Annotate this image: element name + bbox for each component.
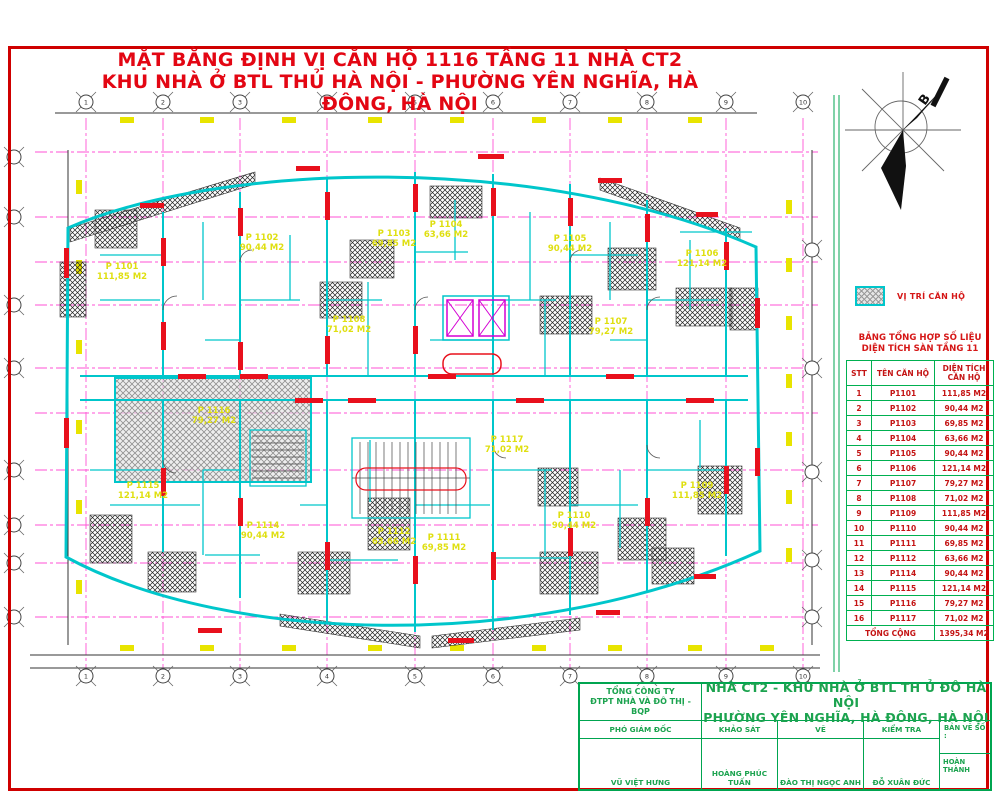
grid-bubble: [802, 240, 822, 260]
table-cell: 90,44 M2: [935, 521, 994, 536]
svg-text:1: 1: [84, 672, 88, 680]
table-cell: 14: [847, 581, 872, 596]
apartment-label-p1108: P 110871,02 M2: [327, 315, 371, 335]
svg-text:10: 10: [799, 98, 807, 106]
svg-text:5: 5: [413, 672, 417, 680]
legend: VỊ TRÍ CĂN HỘ: [855, 286, 965, 306]
svg-text:7: 7: [568, 672, 572, 680]
role-cell: VẼ: [778, 721, 864, 738]
company-line-2: ĐTPT NHÀ VÀ ĐÔ THỊ - BQP: [580, 697, 701, 717]
legend-hatch-swatch: [855, 286, 885, 306]
grid-bubble: [802, 550, 822, 570]
project-cell: NHÀ CT2 - KHU NHÀ Ở BTL TH Ủ ĐÔ HÀ NỘI P…: [702, 684, 990, 720]
table-cell: 4: [847, 431, 872, 446]
table-cell: P1107: [872, 476, 935, 491]
grid-bubble: 4: [317, 666, 337, 686]
svg-text:9: 9: [724, 98, 728, 106]
table-cell: 12: [847, 551, 872, 566]
svg-text:4: 4: [325, 672, 329, 680]
svg-text:8: 8: [645, 672, 649, 680]
table-row: 14P1115121,14 M2: [847, 581, 994, 596]
table-cell: P1106: [872, 461, 935, 476]
apartment-label-p1112: P 111263,66 M2: [372, 527, 416, 547]
title-line-2: KHU NHÀ Ở BTL THỦ HÀ NỘI - PHƯỜNG YÊN NG…: [85, 71, 715, 115]
table-cell: 63,66 M2: [935, 431, 994, 446]
grid-bubble: [4, 460, 24, 480]
table-cell: P1112: [872, 551, 935, 566]
table-cell: 1: [847, 386, 872, 401]
grid-bubble: [4, 358, 24, 378]
drawing-sheet: B 1234567891012345678910 MẶT BẰNG ĐỊNH V…: [0, 0, 1000, 800]
summary-table: BẢNG TỔNG HỢP SỐ LIỆU DIỆN TÍCH SÀN TẦNG…: [846, 333, 994, 641]
table-cell: 13: [847, 566, 872, 581]
apartment-label-p1107: P 110779,27 M2: [589, 317, 633, 337]
apartment-label-p1114: P 111490,44 M2: [241, 521, 285, 541]
grid-bubble: 6: [483, 666, 503, 686]
apartment-label-p1110: P 111090,44 M2: [552, 511, 596, 531]
sheet-number-cell: BẢN VẼ SỐ :: [940, 721, 990, 754]
table-cell: 10: [847, 521, 872, 536]
table-cell: P1117: [872, 611, 935, 626]
table-cell: 121,14 M2: [935, 581, 994, 596]
table-cell: P1109: [872, 506, 935, 521]
project-line-1: NHÀ CT2 - KHU NHÀ Ở BTL TH Ủ ĐÔ HÀ NỘI: [702, 680, 990, 710]
grid-bubble: 3: [230, 666, 250, 686]
header-stt: STT: [847, 361, 872, 386]
apartment-label-p1109: P 1109111,85 M2: [672, 481, 722, 501]
header-ten-can-ho: TÊN CĂN HỘ: [872, 361, 935, 386]
table-row: 11P111169,85 M2: [847, 536, 994, 551]
header-dien-tich: DIỆN TÍCH CĂN HỘ: [935, 361, 994, 386]
grid-bubble: 2: [153, 666, 173, 686]
grid-bubble: [802, 462, 822, 482]
company-cell: TỔNG CÔNG TY ĐTPT NHÀ VÀ ĐÔ THỊ - BQP: [580, 684, 702, 720]
table-row: 2P110290,44 M2: [847, 401, 994, 416]
grid-bubble: 1: [76, 666, 96, 686]
table-cell: 2: [847, 401, 872, 416]
table-cell: P1114: [872, 566, 935, 581]
apartment-label-p1104: P 110463,66 M2: [424, 220, 468, 240]
summary-header-row: STT TÊN CĂN HỘ DIỆN TÍCH CĂN HỘ: [847, 361, 994, 386]
table-cell: 6: [847, 461, 872, 476]
table-cell: P1108: [872, 491, 935, 506]
grid-bubble: [4, 515, 24, 535]
table-cell: 90,44 M2: [935, 566, 994, 581]
table-cell: 9: [847, 506, 872, 521]
name-cell: VŨ VIỆT HƯNG: [580, 739, 702, 789]
table-row: 8P110871,02 M2: [847, 491, 994, 506]
name-cell: ĐÀO THỊ NGỌC ANH: [778, 739, 864, 789]
table-cell: 15: [847, 596, 872, 611]
table-cell: 16: [847, 611, 872, 626]
table-cell: 69,85 M2: [935, 536, 994, 551]
table-cell: P1104: [872, 431, 935, 446]
summary-total-row: TỔNG CỘNG 1395,34 M2: [847, 626, 994, 641]
table-row: 1P1101111,85 M2: [847, 386, 994, 401]
svg-text:6: 6: [491, 672, 495, 680]
table-row: 16P111771,02 M2: [847, 611, 994, 626]
apartment-label-p1115: P 1115121,14 M2: [118, 481, 168, 501]
table-cell: P1110: [872, 521, 935, 536]
grid-bubble: [802, 607, 822, 627]
grid-bubble: 10: [793, 92, 813, 112]
role-cell: PHÓ GIÁM ĐỐC: [580, 721, 702, 738]
table-cell: 111,85 M2: [935, 506, 994, 521]
company-line-1: TỔNG CÔNG TY: [580, 687, 701, 697]
table-cell: 71,02 M2: [935, 611, 994, 626]
total-value: 1395,34 M2: [935, 626, 994, 641]
table-row: 4P110463,66 M2: [847, 431, 994, 446]
drawing-title: MẶT BẰNG ĐỊNH VỊ CĂN HỘ 1116 TẦNG 11 NHÀ…: [85, 49, 715, 115]
table-row: 13P111490,44 M2: [847, 566, 994, 581]
table-cell: P1111: [872, 536, 935, 551]
north-arrow-icon: B: [845, 72, 961, 210]
svg-text:3: 3: [238, 672, 242, 680]
apartment-label-p1117: P 111771,02 M2: [485, 435, 529, 455]
apartment-label-p1116: P 111679,27 M2: [192, 406, 236, 426]
apartment-label-p1103: P 110369,85 M2: [372, 229, 416, 249]
name-cell: ĐỖ XUÂN ĐỨC: [864, 739, 939, 789]
table-row: 10P111090,44 M2: [847, 521, 994, 536]
apartment-label-p1111: P 111169,85 M2: [422, 533, 466, 553]
table-cell: 5: [847, 446, 872, 461]
frame-divider: [834, 95, 839, 672]
roles-row: PHÓ GIÁM ĐỐCKHẢO SÁTVẼKIỂM TRA: [580, 721, 939, 739]
title-block: TỔNG CÔNG TY ĐTPT NHÀ VÀ ĐÔ THỊ - BQP NH…: [578, 682, 992, 791]
name-cell: HOÀNG PHÚC TUẤN: [702, 739, 778, 789]
grid-bubble: [4, 207, 24, 227]
grid-bubble: 7: [560, 666, 580, 686]
grid-bubble: [4, 147, 24, 167]
table-row: 5P110590,44 M2: [847, 446, 994, 461]
grid-bubble: [4, 295, 24, 315]
table-cell: P1116: [872, 596, 935, 611]
table-cell: 8: [847, 491, 872, 506]
apartment-label-p1101: P 1101111,85 M2: [97, 262, 147, 282]
table-cell: P1105: [872, 446, 935, 461]
table-cell: 90,44 M2: [935, 401, 994, 416]
role-cell: KIỂM TRA: [864, 721, 939, 738]
table-row: 6P1106121,14 M2: [847, 461, 994, 476]
table-cell: P1115: [872, 581, 935, 596]
names-row: VŨ VIỆT HƯNGHOÀNG PHÚC TUẤNĐÀO THỊ NGỌC …: [580, 739, 939, 789]
table-row: 15P111679,27 M2: [847, 596, 994, 611]
grid-bubble: 9: [716, 92, 736, 112]
table-row: 7P110779,27 M2: [847, 476, 994, 491]
apartment-label-p1105: P 110590,44 M2: [548, 234, 592, 254]
elevator-core: [443, 296, 509, 374]
grid-bubble: [4, 553, 24, 573]
table-cell: 3: [847, 416, 872, 431]
table-cell: P1102: [872, 401, 935, 416]
table-cell: 63,66 M2: [935, 551, 994, 566]
table-cell: 79,27 M2: [935, 476, 994, 491]
grid-bubble: [4, 607, 24, 627]
table-cell: 90,44 M2: [935, 446, 994, 461]
table-cell: P1103: [872, 416, 935, 431]
table-cell: 11: [847, 536, 872, 551]
summary-table-title-1: BẢNG TỔNG HỢP SỐ LIỆU: [846, 333, 994, 344]
total-label: TỔNG CỘNG: [847, 626, 935, 641]
table-cell: 79,27 M2: [935, 596, 994, 611]
apartment-label-p1106: P 1106121,14 M2: [677, 249, 727, 269]
table-row: 9P1109111,85 M2: [847, 506, 994, 521]
table-cell: 69,85 M2: [935, 416, 994, 431]
svg-text:2: 2: [161, 672, 165, 680]
table-cell: 111,85 M2: [935, 386, 994, 401]
apartment-label-p1102: P 110290,44 M2: [240, 233, 284, 253]
table-row: 3P110369,85 M2: [847, 416, 994, 431]
table-cell: 7: [847, 476, 872, 491]
table-row: 12P111263,66 M2: [847, 551, 994, 566]
title-line-1: MẶT BẰNG ĐỊNH VỊ CĂN HỘ 1116 TẦNG 11 NHÀ…: [85, 49, 715, 71]
summary-table-title-2: DIỆN TÍCH SÀN TẦNG 11: [846, 344, 994, 355]
status-cell: HOÀN THÀNH: [940, 754, 990, 789]
north-label: B: [916, 92, 934, 109]
table-cell: P1101: [872, 386, 935, 401]
table-cell: 71,02 M2: [935, 491, 994, 506]
grid-bubble: 5: [405, 666, 425, 686]
role-cell: KHẢO SÁT: [702, 721, 778, 738]
table-cell: 121,14 M2: [935, 461, 994, 476]
legend-label: VỊ TRÍ CĂN HỘ: [897, 292, 965, 301]
grid-bubble: [802, 358, 822, 378]
